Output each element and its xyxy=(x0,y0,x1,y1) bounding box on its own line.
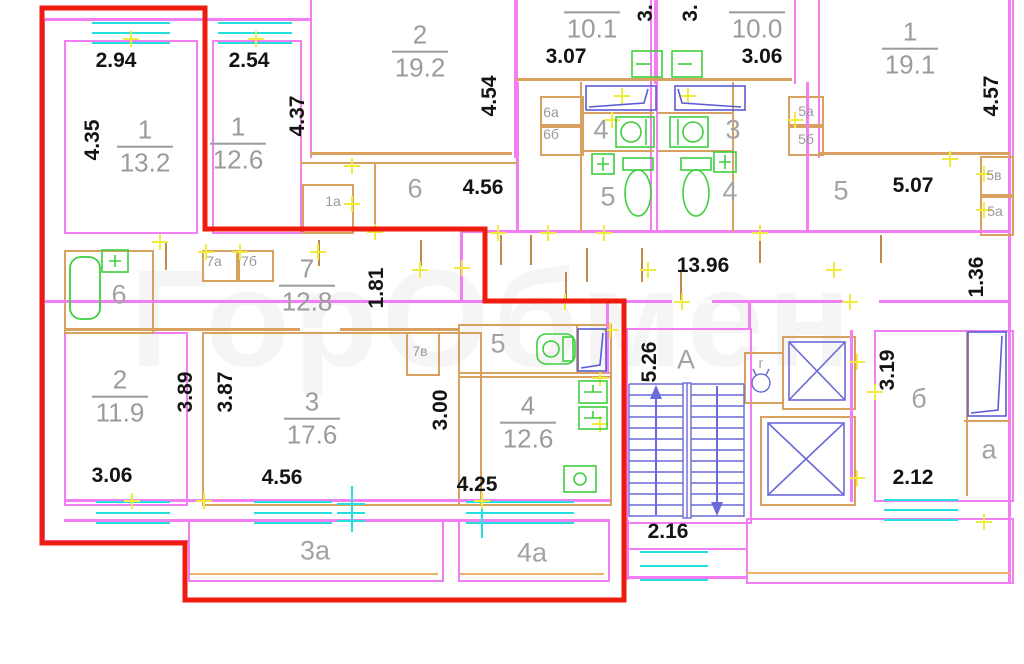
dimension-label: 4.37 xyxy=(286,96,310,137)
dimension-label: 3.06 xyxy=(92,464,133,488)
mark-label: 6 xyxy=(407,174,422,205)
dimension-label: 5.07 xyxy=(893,174,934,198)
mark-label: г xyxy=(758,355,763,371)
mark-label: 4 xyxy=(722,177,737,208)
mark-label: 5 xyxy=(490,329,505,360)
dimension-label: 13.96 xyxy=(677,254,730,278)
mark-label: 5б xyxy=(798,131,814,147)
mark-label: 4а xyxy=(517,538,547,569)
dimension-label: 2.12 xyxy=(893,466,934,490)
mark-label: 5 xyxy=(600,182,615,213)
mark-label: 5 xyxy=(833,176,848,207)
dimension-label: 4.35 xyxy=(81,120,105,161)
dimension-label: 5.26 xyxy=(638,342,662,383)
room-label: 317.6 xyxy=(284,389,340,450)
mark-label: а xyxy=(981,435,996,466)
room-label: 10.1 xyxy=(564,9,620,42)
mark-label: 7а xyxy=(206,253,222,269)
dimension-label: 3. xyxy=(679,4,703,22)
mark-label: 5а xyxy=(798,103,814,119)
room-label: 211.9 xyxy=(92,367,148,428)
mark-label: 7в xyxy=(412,343,427,359)
mark-label: 3 xyxy=(725,115,740,146)
dimension-label: 1.81 xyxy=(365,268,389,309)
dimension-label: 3.19 xyxy=(876,350,900,391)
dimension-label: 3.07 xyxy=(546,45,587,69)
dimension-label: 3.89 xyxy=(174,372,198,413)
dimension-label: 3. xyxy=(634,4,658,22)
mark-label: б xyxy=(911,384,926,415)
mark-label: 4 xyxy=(593,115,608,146)
dimension-label: 2.54 xyxy=(229,49,270,73)
mark-label: 5а xyxy=(987,203,1003,219)
floor-plan-canvas: ГорОбмен xyxy=(0,0,1024,664)
dimension-label: 4.54 xyxy=(478,76,502,117)
mark-label: 6б xyxy=(543,126,559,142)
room-label: 112.6 xyxy=(210,114,266,175)
mark-label: 3а xyxy=(300,536,330,567)
room-label: 712.8 xyxy=(279,256,335,317)
room-label: 10.0 xyxy=(729,9,785,42)
dimension-label: 4.56 xyxy=(262,466,303,490)
mark-label: 5в xyxy=(986,167,1001,183)
dimension-label: 2.16 xyxy=(648,520,689,544)
dimension-label: 3.87 xyxy=(214,372,238,413)
mark-label: А xyxy=(677,345,695,376)
room-label: 219.2 xyxy=(392,22,448,83)
dimension-label: 4.57 xyxy=(980,76,1004,117)
room-label: 113.2 xyxy=(117,117,173,178)
dimension-label: 3.06 xyxy=(742,45,783,69)
dimension-label: 3.00 xyxy=(429,390,453,431)
room-label: 412.6 xyxy=(500,393,556,454)
mark-label: 7б xyxy=(241,253,257,269)
labels-layer: 2.942.543.073.064.565.0713.963.064.564.2… xyxy=(0,0,1024,664)
dimension-label: 4.25 xyxy=(457,473,498,497)
room-label: 119.1 xyxy=(882,19,938,80)
dimension-label: 1.36 xyxy=(965,257,989,298)
mark-label: 6 xyxy=(111,280,126,311)
mark-label: 6а xyxy=(543,104,559,120)
mark-label: 1а xyxy=(325,193,341,209)
dimension-label: 4.56 xyxy=(463,176,504,200)
dimension-label: 2.94 xyxy=(96,49,137,73)
